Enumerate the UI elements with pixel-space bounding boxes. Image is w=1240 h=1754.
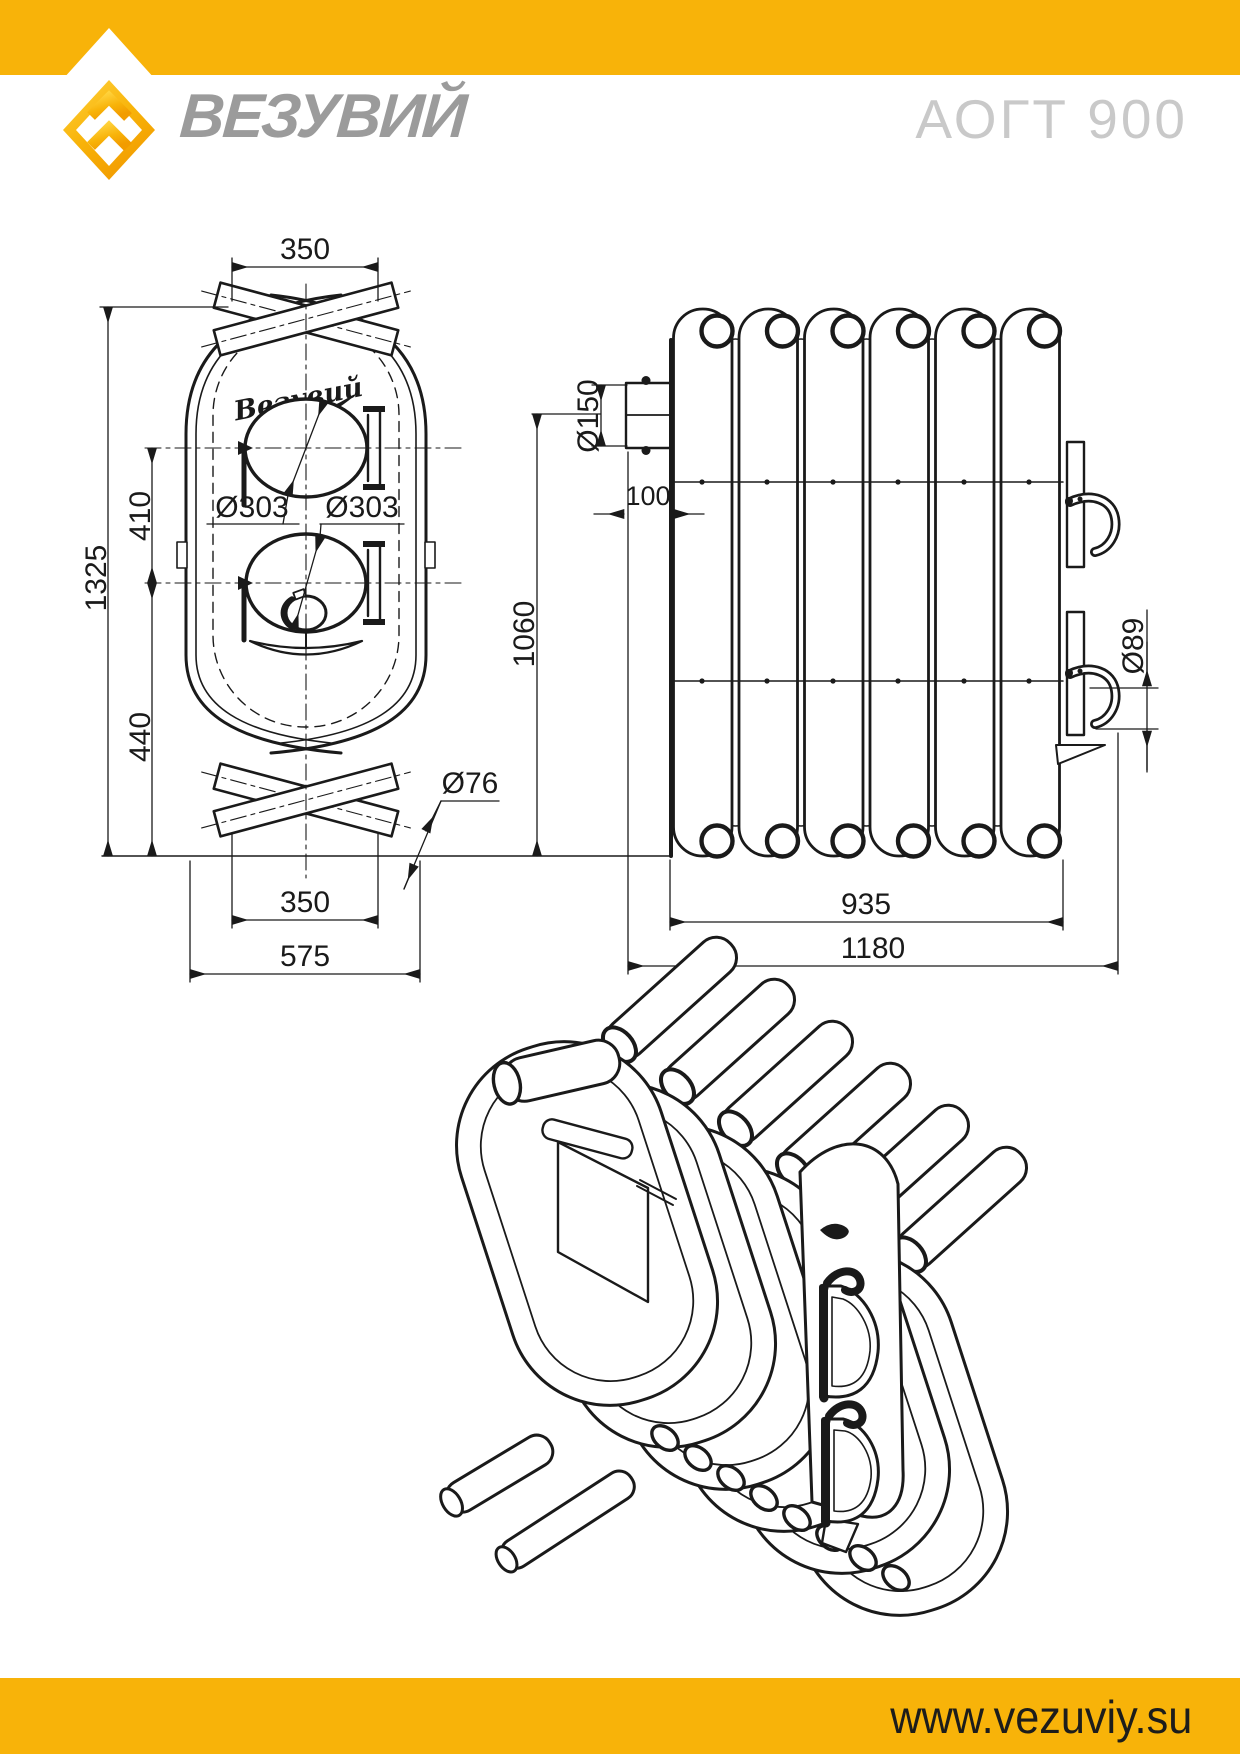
isometric-view [430, 929, 1034, 1641]
dim-front-bottom-width: 350 [280, 886, 330, 919]
front-lower-door [238, 534, 385, 655]
tube-bundle [671, 309, 1063, 857]
dim-bundle-length: 935 [841, 888, 891, 921]
chimney-stub [626, 376, 671, 455]
dim-pipe-diameter: Ø76 [442, 767, 499, 800]
dim-side-height: 1060 [508, 601, 541, 668]
side-view: Ø150 100 1060 Ø89 935 1180 [508, 309, 1158, 974]
dim-front-lower-section: 440 [124, 712, 157, 762]
front-view: Везувий [80, 233, 499, 982]
dim-front-overall-width: 575 [280, 940, 330, 973]
datasheet-page: ВЕЗУВИЙ АОГТ 900 [0, 0, 1240, 1754]
iso-bottom-pipes [436, 1430, 640, 1577]
dim-overall-length: 1180 [841, 932, 906, 965]
dim-front-door-spacing: 410 [124, 491, 157, 541]
technical-drawing: Везувий [0, 0, 1240, 1754]
dim-front-top-width: 350 [280, 233, 330, 266]
dim-handle-diameter: Ø89 [1117, 618, 1150, 675]
dim-chimney-offset: 100 [625, 481, 670, 511]
iso-front-plate [800, 1144, 903, 1552]
website-url: www.vezuviy.su [890, 1694, 1192, 1740]
front-upper-door [238, 399, 385, 505]
dim-lower-door-diameter: Ø303 [325, 491, 398, 524]
side-door-hardware [1056, 442, 1116, 764]
dim-front-overall-height: 1325 [80, 545, 113, 612]
dim-chimney-diameter: Ø150 [572, 379, 605, 452]
dim-upper-door-diameter: Ø303 [215, 491, 288, 524]
